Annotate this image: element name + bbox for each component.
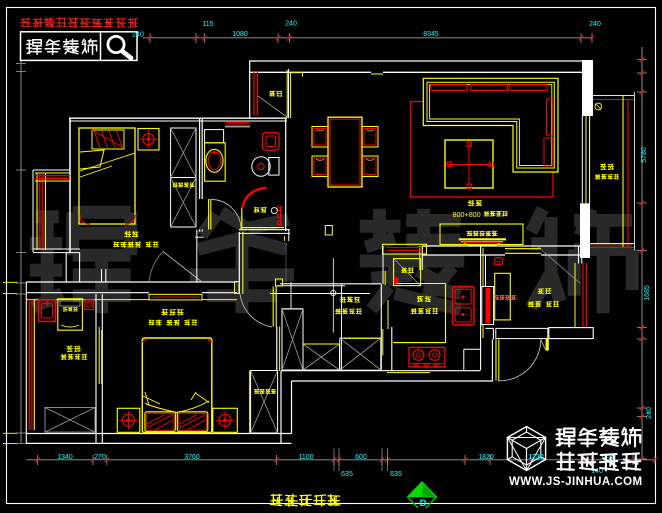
svg-text:5780: 5780 bbox=[641, 147, 648, 163]
svg-text:240: 240 bbox=[132, 32, 144, 39]
svg-text:8345: 8345 bbox=[423, 31, 439, 38]
svg-text:240: 240 bbox=[589, 21, 601, 28]
svg-text:1340: 1340 bbox=[57, 454, 73, 461]
svg-text:270: 270 bbox=[94, 454, 106, 461]
svg-text:1820: 1820 bbox=[478, 454, 494, 461]
svg-text:635: 635 bbox=[341, 471, 353, 478]
svg-text:3760: 3760 bbox=[184, 454, 200, 461]
svg-text:WWW.JS-JINHUA.COM: WWW.JS-JINHUA.COM bbox=[509, 476, 643, 488]
svg-text:D: D bbox=[420, 498, 427, 508]
svg-text:1100: 1100 bbox=[298, 454, 313, 461]
svg-text:1230: 1230 bbox=[528, 454, 544, 461]
svg-text:800+800: 800+800 bbox=[453, 210, 481, 219]
svg-text:635: 635 bbox=[390, 471, 402, 478]
svg-text:1080: 1080 bbox=[232, 31, 248, 38]
svg-text:600: 600 bbox=[355, 454, 367, 461]
svg-text:240: 240 bbox=[285, 21, 297, 28]
svg-text:240: 240 bbox=[646, 407, 653, 419]
svg-text:115: 115 bbox=[202, 21, 213, 28]
svg-text:1685: 1685 bbox=[644, 285, 651, 301]
